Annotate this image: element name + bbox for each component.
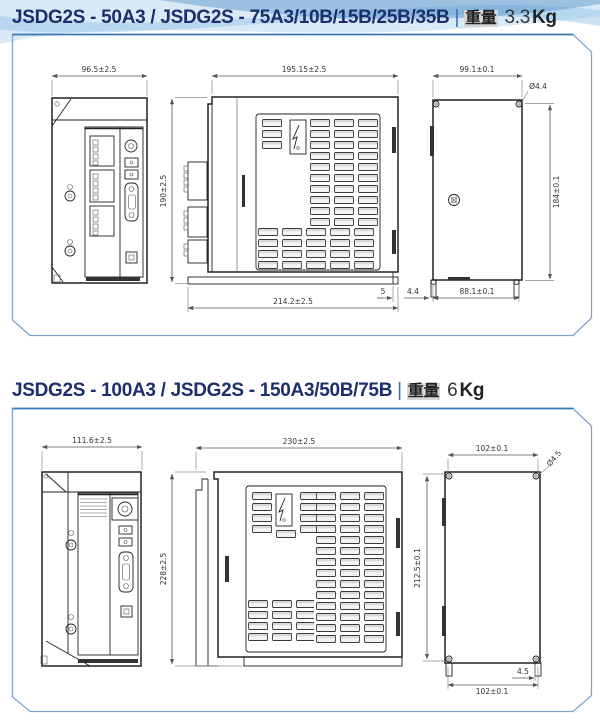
connector-column xyxy=(125,140,138,263)
terminal-blocks xyxy=(90,136,114,236)
dim-back-hole-pitch: 102±0.1 xyxy=(476,687,509,696)
dim-back-width: 99.1±0.1 xyxy=(460,65,495,74)
weight-unit: Kg xyxy=(532,7,557,28)
section1-side-view xyxy=(184,97,398,284)
front-louvers xyxy=(80,499,107,517)
section2-front-view xyxy=(41,472,141,666)
weight-value: 3.3 xyxy=(502,7,532,28)
brand-logo xyxy=(276,494,292,526)
section1-dimensions: 96.5±2.5 190±2.5 195.15±2.5 214.2±2.5 5 … xyxy=(52,65,561,312)
section1-drawing: 96.5±2.5 190±2.5 195.15±2.5 214.2±2.5 5 … xyxy=(0,0,600,352)
dim-back-foot: 4.5 xyxy=(517,667,529,676)
vent-panel xyxy=(246,486,400,652)
section2-back-view xyxy=(442,472,541,676)
dim-hole-dia: Ø4.5 xyxy=(545,449,564,469)
dim-back-height: 184±0.1 xyxy=(552,176,561,209)
dim-hole-dia: Ø4.4 xyxy=(529,82,547,91)
section1-title: JSDG2S - 50A3 / JSDG2S - 75A3/10B/15B/25… xyxy=(12,4,557,29)
dim-front-width: 111.6±2.5 xyxy=(72,436,112,445)
title-separator: | xyxy=(449,7,464,28)
section1-back-view xyxy=(430,100,522,297)
section2-model: JSDG2S - 100A3 / JSDG2S - 150A3/50B/75B xyxy=(12,380,392,401)
dim-side-bottom-width: 214.2±2.5 xyxy=(273,297,313,306)
dim-front-height: 228±2.5 xyxy=(159,553,168,586)
dim-back-foot: 4.4 xyxy=(407,287,419,296)
section2-title: JSDG2S - 100A3 / JSDG2S - 150A3/50B/75B|… xyxy=(12,377,484,402)
weight-value: 6 xyxy=(445,380,459,401)
connector-column xyxy=(112,498,138,617)
section2-drawing: 111.6±2.5 228±2.5 230±2.5 102±0.1 Ø4.5 2… xyxy=(0,360,600,720)
section1-panel-frame xyxy=(13,35,592,336)
dim-back-hole-pitch: 88.1±0.1 xyxy=(460,287,495,296)
dim-side-step: 5 xyxy=(381,287,386,296)
brand-logo xyxy=(290,120,306,154)
spec-sheet-page: { "colors": { "title_text": "#1c2f6d", "… xyxy=(0,0,600,720)
dim-side-width: 195.15±2.5 xyxy=(282,65,327,74)
vent-panel xyxy=(256,114,396,270)
section2-side-view xyxy=(196,472,402,666)
dim-side-width: 230±2.5 xyxy=(283,437,316,446)
dim-back-height: 212.5±0.1 xyxy=(413,548,422,588)
section1-model: JSDG2S - 50A3 / JSDG2S - 75A3/10B/15B/25… xyxy=(12,7,449,28)
section1-front-view xyxy=(52,98,147,283)
dim-back-width: 102±0.1 xyxy=(476,444,509,453)
side-connector-blocks xyxy=(184,162,207,263)
dim-front-width: 96.5±2.5 xyxy=(82,65,117,74)
dim-front-side-height: 190±2.5 xyxy=(159,175,168,208)
weight-unit: Kg xyxy=(459,380,484,401)
weight-label: 重量 xyxy=(407,383,440,400)
weight-label: 重量 xyxy=(464,10,497,27)
title-separator: | xyxy=(392,380,407,401)
